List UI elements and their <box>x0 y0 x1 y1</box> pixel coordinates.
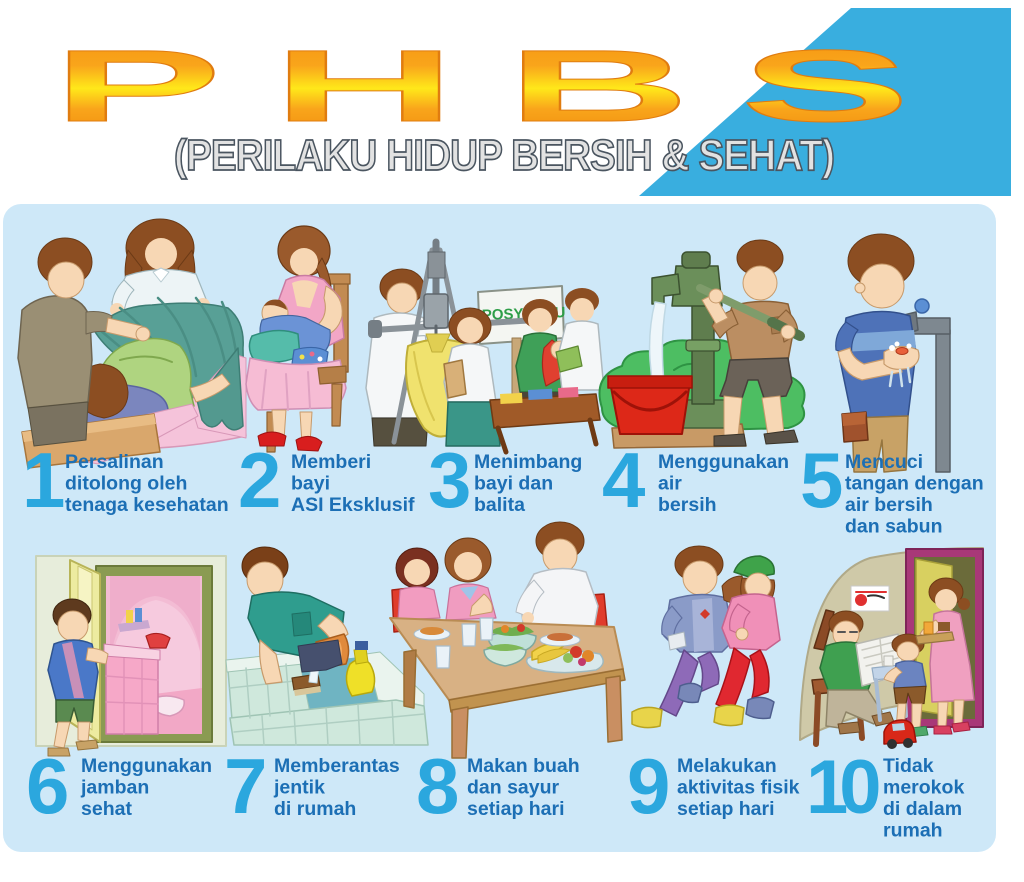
svg-text:2: 2 <box>238 436 281 524</box>
svg-text:3: 3 <box>428 436 471 524</box>
svg-text:7: 7 <box>224 742 267 830</box>
svg-text:10: 10 <box>806 745 879 830</box>
svg-text:9: 9 <box>627 742 670 830</box>
svg-text:(PERILAKU HIDUP BERSIH & SEHAT: (PERILAKU HIDUP BERSIH & SEHAT) <box>174 131 834 180</box>
svg-text:4: 4 <box>602 436 645 524</box>
svg-text:6: 6 <box>26 742 69 830</box>
svg-text:1: 1 <box>22 436 65 524</box>
svg-text:PHBS: PHBS <box>52 29 960 143</box>
svg-text:8: 8 <box>416 742 459 830</box>
svg-text:5: 5 <box>800 436 843 524</box>
